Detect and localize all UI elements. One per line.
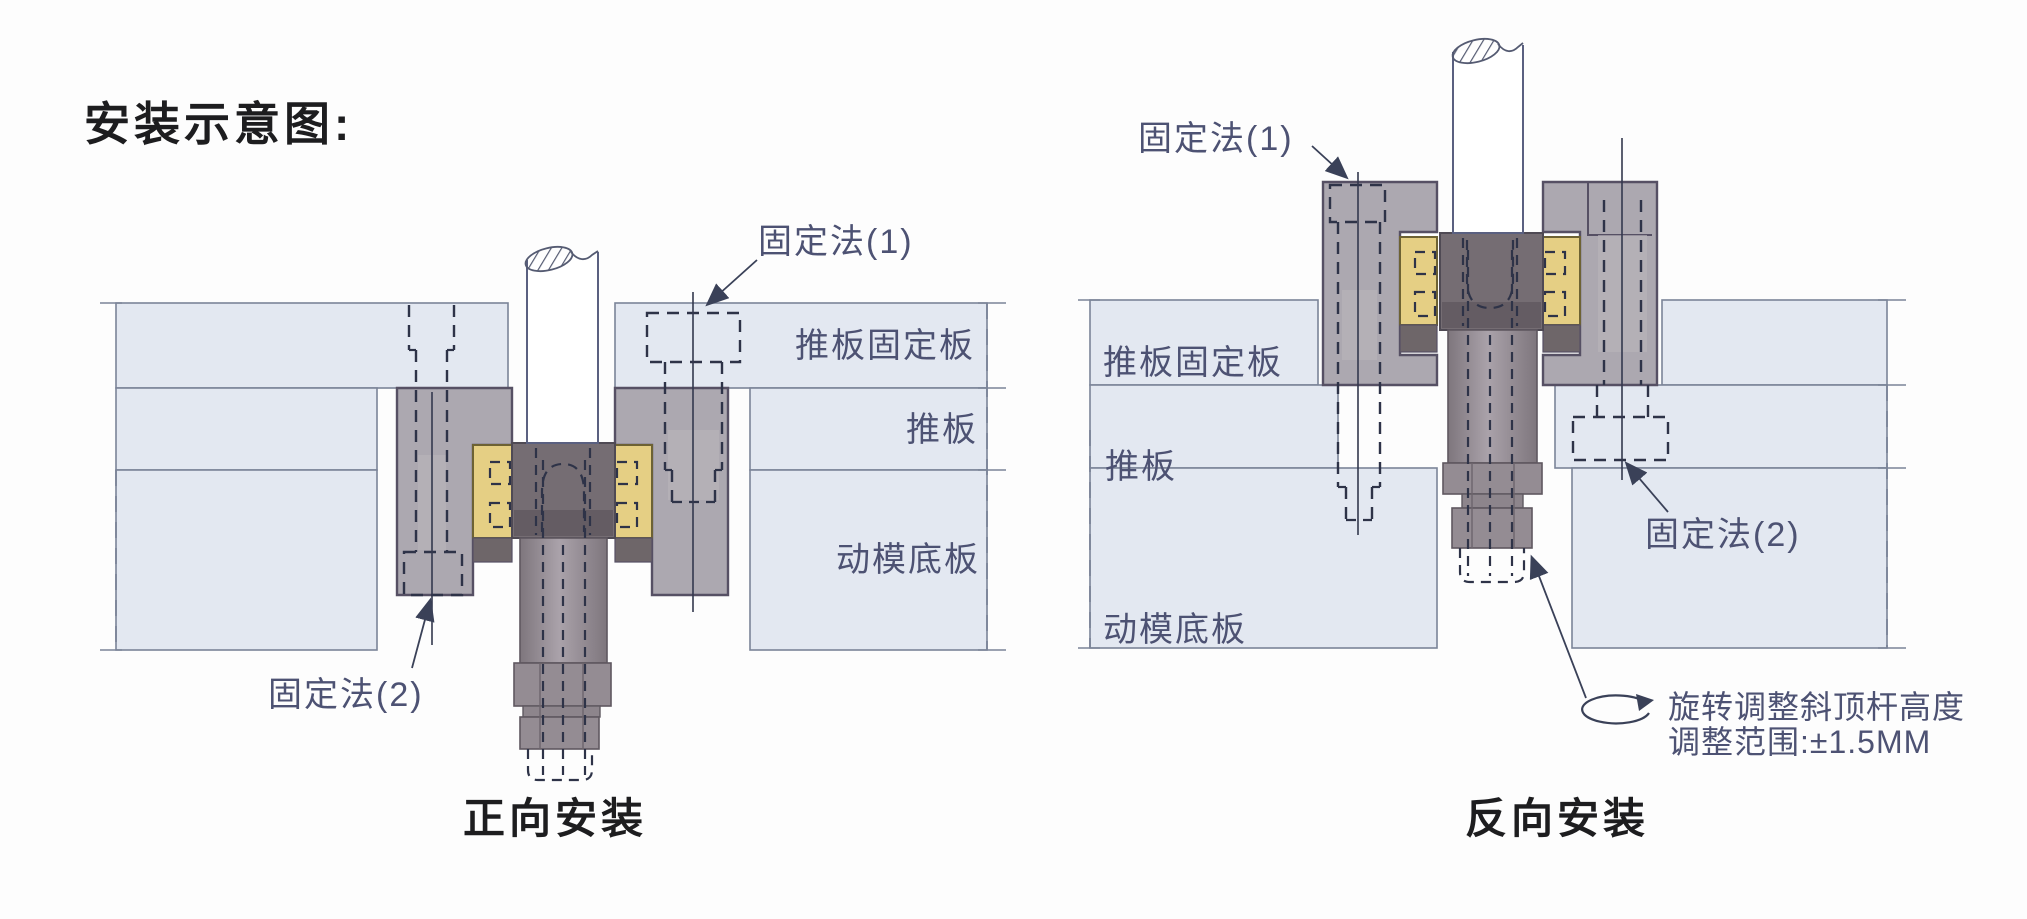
lifter-rod: [523, 243, 598, 443]
screw-hidden-tip: [528, 749, 592, 780]
rotation-note-line1: 旋转调整斜顶杆高度: [1668, 689, 1965, 725]
label-retainer-plate: 推板固定板: [1103, 344, 1283, 382]
leader-line-fixing2: [412, 601, 430, 668]
label-fixing-method-2: 固定法(2): [1645, 516, 1801, 554]
rotation-note-line2: 调整范围:±1.5MM: [1668, 724, 1931, 760]
base-plate-right-segment: [1572, 468, 1887, 648]
schematic-canvas: 安装示意图:: [0, 0, 2027, 919]
adjust-hex-nut: [1452, 508, 1532, 548]
label-fixing-method-2: 固定法(2): [268, 676, 424, 714]
label-fixing-method-1: 固定法(1): [758, 223, 914, 261]
caption-forward-installation: 正向安装: [463, 795, 647, 842]
lifter-rod-shaft: [527, 252, 598, 443]
bronze-slider-right: [615, 445, 652, 538]
screw-neck: [523, 706, 600, 717]
base-plate-left-segment: [116, 470, 377, 650]
label-push-plate: 推板: [906, 411, 978, 449]
page-title: 安装示意图:: [84, 98, 353, 150]
lifter-rod: [1450, 35, 1523, 233]
reverse-installation-diagram: 固定法(1) 推板固定板 推板 动模底板 固定法(2) 旋转调整斜顶杆高度 调整…: [1078, 35, 1965, 842]
t-nut-lower-band: [514, 510, 613, 536]
label-base-plate: 动模底板: [836, 541, 980, 579]
slider-foot-left: [1400, 325, 1437, 352]
adjust-hex-nut: [520, 717, 599, 749]
push-plate-left-segment: [116, 388, 377, 470]
bronze-slider-right: [1543, 237, 1580, 325]
t-nut-lower-band: [1442, 302, 1541, 328]
leader-line-fixing1: [708, 260, 757, 304]
retainer-plate-right-segment: [1662, 300, 1887, 385]
retainer-plate-left-segment: [116, 303, 508, 388]
leader-line-fixing1: [1312, 146, 1346, 177]
lifter-rod-shaft: [1453, 45, 1523, 233]
label-push-plate: 推板: [1105, 448, 1177, 486]
screw-shaft: [1448, 330, 1537, 463]
screw-collar: [1443, 463, 1542, 494]
screw-hidden-tip: [1460, 548, 1524, 582]
push-plate-right-segment: [1555, 385, 1887, 468]
label-retainer-plate: 推板固定板: [795, 327, 975, 365]
rotation-arrowhead-icon: [1636, 694, 1654, 711]
slider-foot-right: [1543, 325, 1580, 352]
t-nut-coupling: [1440, 233, 1543, 330]
slider-foot-right: [615, 538, 652, 562]
caption-reverse-installation: 反向安装: [1465, 795, 1649, 842]
label-fixing-method-1: 固定法(1): [1138, 120, 1294, 158]
bronze-slider-left: [473, 445, 512, 538]
forward-installation-diagram: 固定法(1) 推板固定板 推板 动模底板 固定法(2) 正向安装: [100, 223, 1006, 842]
slider-foot-left: [473, 538, 512, 562]
label-base-plate: 动模底板: [1103, 611, 1247, 649]
t-nut-coupling: [512, 443, 615, 538]
installation-schematic-page: 安装示意图:: [0, 0, 2027, 919]
bronze-slider-left: [1400, 237, 1437, 325]
